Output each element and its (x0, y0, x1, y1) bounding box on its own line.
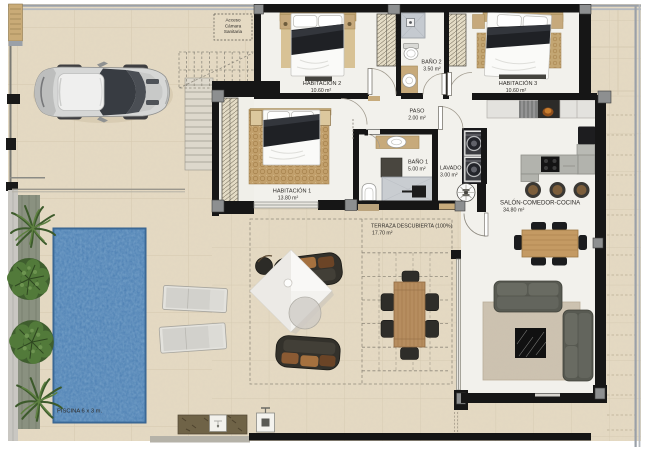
svg-text:Cámara: Cámara (225, 23, 242, 28)
svg-text:SALÓN-COMEDOR-COCINA: SALÓN-COMEDOR-COCINA (500, 200, 581, 207)
svg-text:PISCINA 6 x 3 m.: PISCINA 6 x 3 m. (57, 409, 102, 415)
svg-text:10.60 m²: 10.60 m² (506, 88, 527, 94)
svg-text:3.50 m²: 3.50 m² (423, 67, 441, 73)
svg-text:2.00 m²: 2.00 m² (408, 116, 426, 122)
svg-text:34.80 m²: 34.80 m² (503, 208, 524, 214)
svg-text:BAÑO 2: BAÑO 2 (421, 59, 441, 66)
svg-text:BAÑO 1: BAÑO 1 (408, 159, 428, 166)
svg-text:TERRAZA DESCUBIERTA (100%): TERRAZA DESCUBIERTA (100%) (371, 224, 453, 230)
svg-text:Acceso: Acceso (225, 18, 241, 23)
svg-text:Sanitaria: Sanitaria (224, 29, 243, 34)
svg-text:HABITACIÓN 3: HABITACIÓN 3 (499, 80, 537, 87)
svg-text:5.00 m²: 5.00 m² (408, 167, 426, 173)
svg-text:13.80 m²: 13.80 m² (278, 196, 299, 202)
svg-text:LAVADO: LAVADO (440, 166, 462, 172)
svg-text:HABITACIÓN 2: HABITACIÓN 2 (303, 80, 341, 87)
svg-text:PASO: PASO (410, 109, 426, 115)
svg-text:10.60 m²: 10.60 m² (311, 88, 332, 94)
svg-text:3.00 m²: 3.00 m² (440, 173, 458, 179)
svg-text:HABITACIÓN 1: HABITACIÓN 1 (273, 188, 311, 195)
svg-text:17.70 m²: 17.70 m² (372, 231, 393, 237)
